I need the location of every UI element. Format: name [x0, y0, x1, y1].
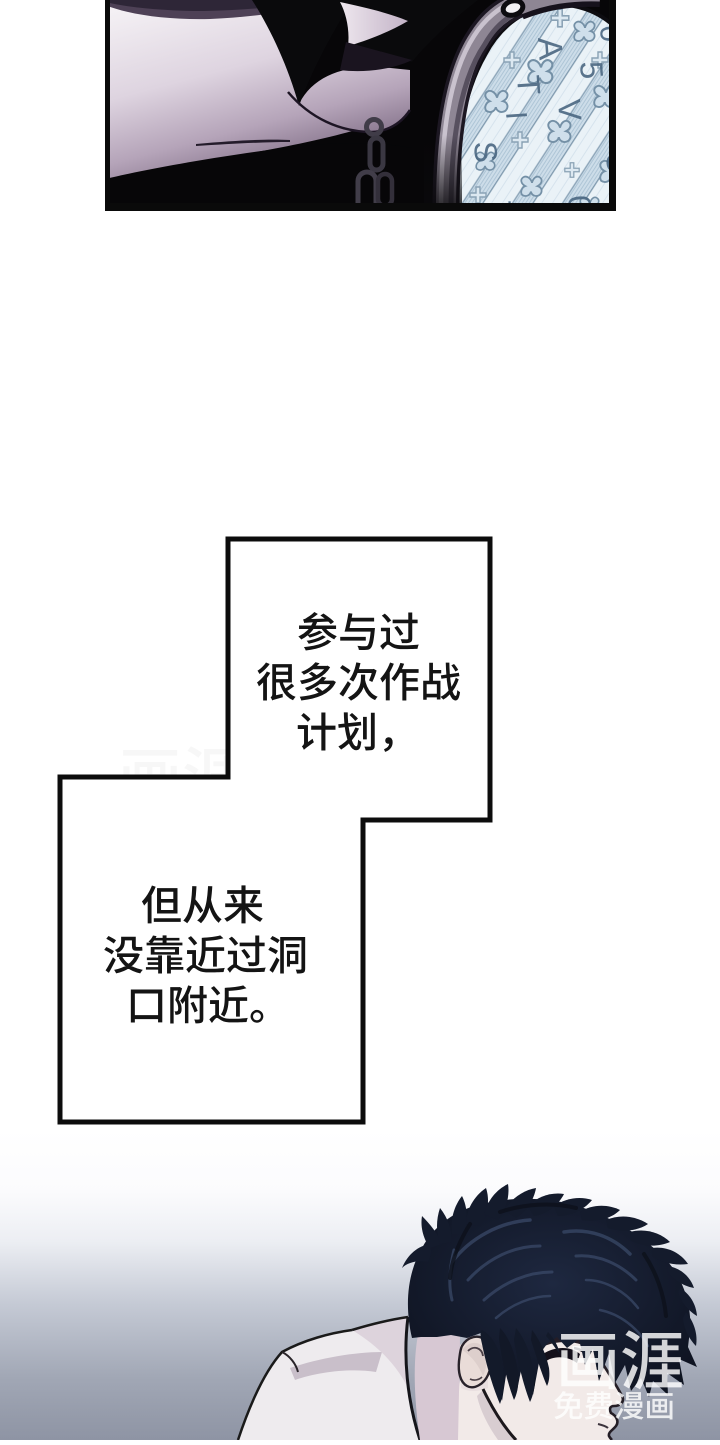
svg-text:V: V — [551, 98, 588, 122]
svg-text:A: A — [530, 36, 570, 62]
svg-text:T: T — [510, 74, 547, 96]
svg-text:S: S — [467, 140, 504, 164]
svg-text:5: 5 — [573, 60, 610, 80]
